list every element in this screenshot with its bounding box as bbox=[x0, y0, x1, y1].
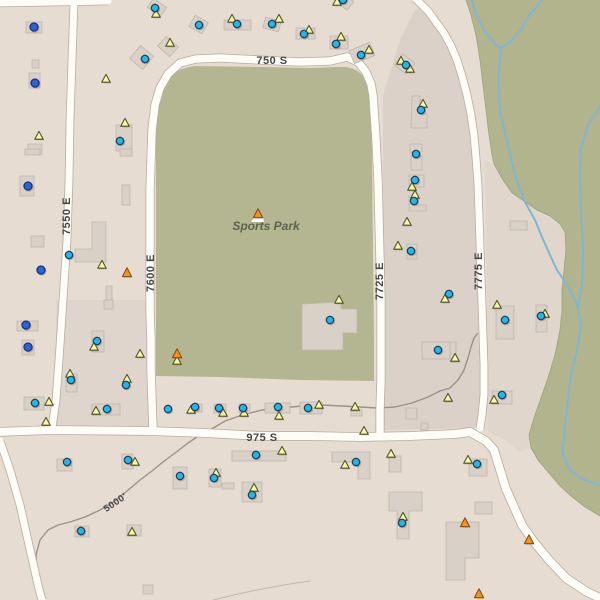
svg-text:7550 E: 7550 E bbox=[61, 197, 73, 235]
svg-text:975 S: 975 S bbox=[246, 432, 277, 444]
svg-text:7725 E: 7725 E bbox=[374, 262, 386, 300]
svg-text:7600 E: 7600 E bbox=[145, 254, 157, 292]
svg-text:7775 E: 7775 E bbox=[473, 252, 485, 290]
svg-text:750 S: 750 S bbox=[256, 55, 287, 67]
svg-text:Sports Park: Sports Park bbox=[232, 219, 301, 233]
